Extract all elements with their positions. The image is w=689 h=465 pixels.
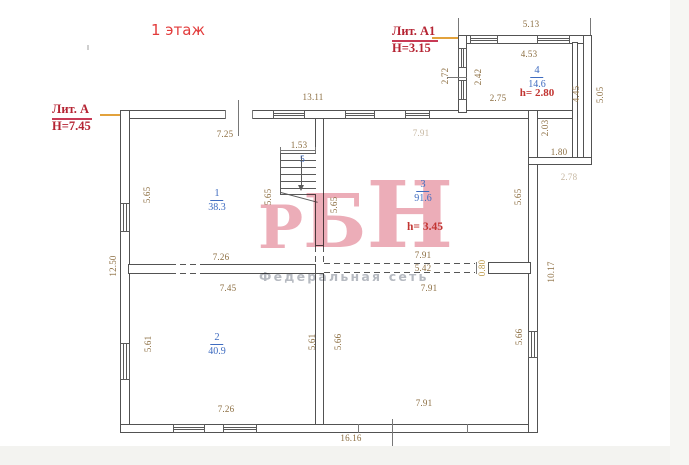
wall-annex-left: [458, 35, 467, 113]
wall-annex-right-outer: [583, 35, 592, 165]
wall-seam-1: [358, 424, 359, 433]
liter-a-name: Лит. А: [52, 103, 92, 120]
dim-tick-top: [238, 100, 239, 136]
ceiling-height-room4: h= 2.80: [520, 87, 554, 99]
door-jamb-right: [252, 110, 253, 119]
liter-a-label: Лит. А H=7.45: [52, 103, 92, 134]
watermark-letter: Н: [366, 180, 453, 252]
scan-strip-right: [670, 0, 689, 465]
window-annex-left-1: [458, 48, 467, 68]
dim-label: 7.91: [421, 283, 438, 293]
doorway-dashed-bottom: [170, 273, 200, 274]
room-area: 40.9: [208, 345, 226, 358]
dim-label: 5.05: [595, 87, 605, 104]
room-label-4: 4 14.6: [528, 60, 546, 91]
dim-label: 5.65: [142, 187, 152, 204]
dim-label: 13.11: [303, 92, 324, 102]
dim-label: 4.45: [571, 86, 581, 103]
dim-label: 7.26: [213, 252, 230, 262]
room-area: 38.3: [208, 201, 226, 214]
liter-a1-pointer-line: [432, 37, 458, 39]
window-top-1: [273, 110, 305, 119]
liter-a1-height: H=3.15: [392, 41, 431, 55]
dim-label: 7.91: [416, 398, 433, 408]
dim-tick-annex-corner-right: [590, 18, 591, 35]
room-number: 2: [210, 332, 223, 345]
dim-label: 5.65: [513, 189, 523, 206]
window-bottom-2: [223, 424, 257, 433]
window-bottom-1: [173, 424, 205, 433]
window-right-1: [528, 331, 538, 358]
door-jamb-left: [225, 110, 226, 119]
floor-plan: 1 этаж Лит. А H=7.45 Лит. А1 H=3.15: [0, 0, 689, 465]
dim-label: 2.72: [440, 68, 450, 85]
dim-label: 5.66: [333, 334, 343, 351]
room-label-1: 1 38.3: [208, 183, 226, 214]
dim-label: 7.91: [415, 250, 432, 260]
room-number: 4: [530, 65, 543, 78]
ceiling-height-room3: h= 3.45: [407, 221, 443, 233]
doorway-dashed-top: [170, 264, 200, 265]
dim-label: 16.16: [340, 433, 361, 443]
liter-a-height: H=7.45: [52, 119, 91, 133]
dim-label: 0.80: [477, 260, 487, 277]
dim-label: 7.45: [220, 283, 237, 293]
dim-label: 7.26: [218, 404, 235, 414]
watermark-subtext: Федеральная сеть: [259, 269, 429, 284]
room-label-5: 5: [300, 155, 305, 165]
dim-tick-annex-corner-left: [458, 18, 459, 35]
dim-label: 7.25: [217, 129, 234, 139]
dim-label: 5.66: [514, 329, 524, 346]
dim-label: 5.42: [415, 263, 432, 273]
window-annex-top-1: [470, 35, 498, 44]
window-annex-left-2: [458, 80, 467, 100]
dim-tick-bottom: [392, 419, 393, 446]
liter-a1-label: Лит. А1 H=3.15: [392, 25, 438, 56]
dim-label: 1.80: [551, 147, 568, 157]
window-annex-top-2: [537, 35, 570, 44]
dim-label: 12.50: [108, 255, 118, 276]
dim-label: 2.75: [490, 93, 507, 103]
door-opening-top-wall: [225, 109, 253, 121]
wall-stub-right: [488, 262, 531, 274]
liter-a1-name: Лит. А1: [392, 25, 438, 42]
room-number: 1: [210, 188, 223, 201]
window-top-2: [345, 110, 375, 119]
window-top-3: [405, 110, 430, 119]
dim-label: 5.65: [329, 197, 339, 214]
dim-tick-annex-left: [447, 77, 467, 78]
dim-line-stairs: [280, 150, 316, 151]
dim-label: 7.91: [413, 128, 430, 138]
room-area: 91.6: [414, 192, 432, 205]
dim-label: 5.65: [263, 189, 273, 206]
dim-label: 5.61: [307, 334, 317, 351]
room-label-3: 3 91.6: [414, 174, 432, 205]
floor-title: 1 этаж: [151, 21, 205, 39]
watermark-letter: Р: [258, 205, 303, 252]
dim-label: 1.53: [291, 140, 308, 150]
room-label-2: 2 40.9: [208, 327, 226, 358]
dim-label: 5.13: [523, 19, 540, 29]
wall-annex-bottom: [528, 157, 592, 165]
scan-strip-bottom: [0, 446, 689, 465]
scan-artifact: [87, 45, 89, 50]
dim-label: 2.42: [473, 69, 483, 86]
liter-a-pointer-line: [100, 114, 121, 116]
dim-label: 2.78: [561, 172, 578, 182]
dim-label: 5.61: [143, 336, 153, 353]
window-left-2: [120, 343, 130, 380]
room-number: 3: [416, 179, 429, 192]
window-left-1: [120, 203, 130, 232]
dim-label: 4.53: [521, 49, 538, 59]
dim-label: 2.03: [540, 120, 550, 137]
dim-label: 10.17: [546, 261, 556, 282]
wall-seam-2: [467, 424, 468, 433]
